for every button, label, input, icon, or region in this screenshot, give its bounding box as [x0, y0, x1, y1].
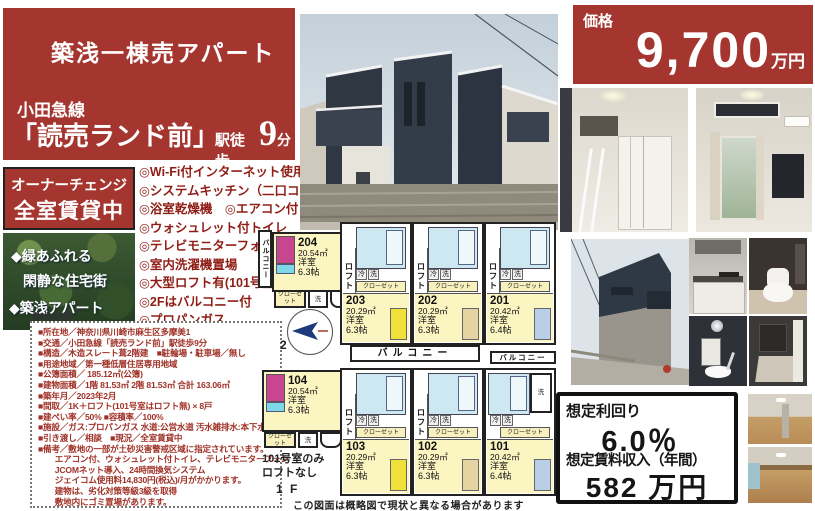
balcony-block [316, 110, 382, 146]
ceiling-light [740, 90, 764, 100]
closet-label: クローゼット [264, 432, 296, 448]
loft-beam [760, 465, 812, 470]
window [611, 287, 633, 295]
shower-hose [726, 352, 735, 370]
overview-line: 建物は、劣化対策等級3級を取得 [38, 486, 276, 497]
bath-unit [356, 227, 406, 269]
toilet-bowl [763, 282, 793, 302]
photo-toilet [749, 238, 807, 314]
yield-box: 想定利回り 6.0％ 想定賃料収入（年間） 582 万円 [556, 392, 738, 504]
overview-line: 敷地内にゴミ置場があります。 [38, 497, 276, 508]
washer-label: 洗 [368, 269, 379, 280]
door-panel [793, 320, 803, 382]
loft-pillar [782, 404, 789, 438]
room-203: 203 20.29㎡ 洋室 6.3帖 [343, 293, 409, 342]
washer-label: 洗 [368, 415, 379, 426]
ceiling-light [711, 320, 723, 332]
dark-doorway [560, 88, 572, 232]
bath-unit [428, 373, 478, 415]
balcony-label: バルコニー [490, 351, 556, 364]
appliance-labels: 冷 洗 [500, 269, 523, 280]
floorplan-1f: 104 20.54㎡ 洋室 6.3帖 クローゼット 洗 101号室のみ ロフトな… [262, 368, 560, 496]
photo-washbasin [689, 316, 747, 386]
balcony-label: バルコニー [258, 230, 272, 288]
green-panel-line2: 閑静な住宅街 [23, 272, 135, 291]
washer-label: 洗 [440, 415, 451, 426]
furniture [462, 459, 479, 491]
curtain [756, 134, 764, 220]
overview-line: ■間取／1K＋ロフト(101号室はロフト無) × 8戸 [38, 401, 276, 412]
overview-line: ■施設／ガス:プロパンガス 水道:公営水道 汚水雑排水:本下水 [38, 422, 276, 433]
loft-ladder [578, 148, 593, 232]
compass-arrow [288, 310, 331, 353]
furniture [534, 308, 551, 340]
fridge-label: 冷 [428, 269, 439, 280]
appliance-labels: 冷 洗 [490, 415, 513, 426]
photo-kitchen [689, 238, 747, 314]
bed-pillow [276, 264, 295, 274]
accent-wall [748, 463, 760, 489]
ceiling-light [600, 90, 626, 102]
overview-line: ■交通／小田急線「読売ランド前」駅徒歩9分 [38, 338, 276, 349]
headline-box: 築浅一棟売アパート 小田急線 「読売ランド前」 駅徒歩 9 分 [3, 8, 295, 160]
ceiling-light [776, 398, 786, 402]
owner-change-badge: オーナーチェンジ 全室賃貸中 [3, 167, 135, 230]
bed [266, 374, 285, 402]
fridge-label: 冷 [356, 269, 367, 280]
transom-window [714, 102, 780, 118]
room-102: 102 20.29㎡ 洋室 6.3帖 [415, 439, 481, 493]
closet-label: クローゼット [356, 281, 406, 292]
plan-disclaimer: この図面は概略図で現状と異なる場合があります [293, 497, 524, 511]
closet-label: クローゼット [500, 427, 550, 438]
stove [719, 272, 739, 277]
range-hood [695, 240, 741, 254]
balcony-block [507, 112, 549, 142]
curtain [710, 132, 720, 220]
closet-label: クローゼット [500, 281, 550, 292]
bed-pillow [266, 402, 285, 412]
room-201: 201 20.42㎡ 洋室 6.4帖 [487, 293, 553, 342]
unit-103: ロフト 冷 洗 クローゼット 103 20.29㎡ 洋室 6.3帖 [340, 368, 412, 496]
floor-label-1f: 1 F [276, 482, 299, 496]
fridge-label: 冷 [500, 269, 511, 280]
furniture [390, 308, 407, 340]
closet-doors [618, 136, 672, 230]
fridge-label: 冷 [356, 415, 367, 426]
badge-line1: オーナーチェンジ [5, 174, 133, 195]
bath-unit [500, 227, 550, 269]
washer-label: 洗 [530, 373, 552, 413]
bathtub [386, 230, 403, 265]
balcony [647, 291, 671, 309]
loft-opening [580, 116, 618, 136]
wall-panel [759, 324, 787, 352]
bathtub [530, 230, 547, 265]
bath-unit [428, 227, 478, 269]
overview-line: ジェイコム使用料14,830円(税込)/月がかかります。 [38, 475, 276, 486]
walk-minutes: 9 [259, 118, 277, 148]
price-value: 9,700 [636, 21, 771, 79]
unit-104: 104 20.54㎡ 洋室 6.3帖 [262, 370, 348, 432]
photo-building-side [571, 239, 689, 385]
door-edge [795, 244, 805, 284]
room-101: 101 20.42㎡ 洋室 6.4帖 [487, 439, 553, 493]
bed [276, 236, 295, 264]
flyer-page: 築浅一棟売アパート 小田急線 「読売ランド前」 駅徒歩 9 分 オーナーチェンジ… [0, 0, 815, 511]
closet-seam [643, 136, 644, 228]
closet-label: クローゼット [428, 281, 478, 292]
loft-note-line1: 101号室のみ [262, 452, 324, 466]
cabinet-doors [693, 282, 745, 314]
fridge-label: 冷 [428, 415, 439, 426]
price-unit: 万円 [771, 47, 805, 72]
closet-label: クローゼット [356, 427, 406, 438]
appliance-labels: 冷 洗 [428, 269, 451, 280]
washer-label: 洗 [440, 269, 451, 280]
closet-label: クローゼット [428, 427, 478, 438]
walk-minutes-unit: 分 [277, 130, 291, 150]
furniture [534, 459, 551, 491]
furniture [390, 459, 407, 491]
washer-label: 洗 [502, 415, 513, 426]
loft-ladder [590, 148, 605, 232]
tv-screen [772, 154, 804, 198]
photo-building-main [300, 14, 558, 230]
furniture [462, 308, 479, 340]
photo-shower-room [749, 316, 807, 386]
station-name: 「読売ランド前」 [11, 116, 215, 153]
glass-door-garden [720, 136, 758, 220]
badge-line2: 全室賃貸中 [5, 195, 133, 225]
bathtub [510, 376, 527, 411]
overview-line: JCOMネット導入、24時間換気システム [38, 465, 276, 476]
mirror [701, 338, 721, 366]
north-arrow-compass [287, 309, 333, 355]
overview-line: エアコン付、ウォシュレット付トイレ、テレビモニターフォン [38, 454, 276, 465]
unit-101: 洗 冷 洗 クローゼット 101 20.42㎡ 洋室 6.4帖 [484, 368, 556, 496]
air-conditioner [784, 116, 810, 127]
unit-203: ロフト 冷 洗 クローゼット 203 20.29㎡ 洋室 6.3帖 [340, 222, 412, 345]
overview-line: ■建物面積／1階 81.53㎡ 2階 81.53㎡ 合計 163.06㎡ [38, 380, 276, 391]
appliance-labels: 冷 洗 [428, 415, 451, 426]
overview-box: ■所在地／神奈川県川崎市麻生区多摩美1 ■交通／小田急線「読売ランド前」駅徒歩9… [30, 321, 282, 508]
ceiling-light [776, 453, 786, 457]
overview-line: ■構造／木造スレート葺2階建 ■駐輪場・駐車場／無し [38, 348, 276, 359]
closet-label: クローゼット [274, 290, 306, 308]
washer-label: 洗 [512, 269, 523, 280]
photo-loft-space-1 [748, 394, 812, 444]
overview-line: ■用途地域／第一種低層住居専用地域 [38, 359, 276, 370]
washer-label: 洗 [298, 432, 318, 448]
washer-label: 洗 [308, 290, 328, 308]
window [417, 82, 425, 126]
bath-unit [356, 373, 406, 415]
appliance-labels: 冷 洗 [356, 415, 379, 426]
room-202: 202 20.29㎡ 洋室 6.3帖 [415, 293, 481, 342]
price-box: 価格 9,700 万円 [573, 5, 813, 84]
loft-note: 101号室のみ ロフトなし [262, 452, 324, 480]
loft-note-line2: ロフトなし [262, 466, 324, 480]
overview-line: ■築年月／2023年2月 [38, 391, 276, 402]
building-side-illustration [571, 239, 689, 385]
room-103: 103 20.29㎡ 洋室 6.3帖 [343, 439, 409, 493]
price-row: 9,700 万円 [573, 21, 805, 79]
room-size: 6.3帖 [288, 406, 346, 416]
headline-title: 築浅一棟売アパート [51, 34, 276, 68]
photo-loft-space-2 [748, 447, 812, 503]
unit-202: ロフト 冷 洗 クローゼット 202 20.29㎡ 洋室 6.3帖 [412, 222, 484, 345]
closet-seam [630, 136, 631, 228]
balcony-label: バルコニー [350, 345, 480, 362]
photo-interior-living [696, 88, 812, 232]
unit-201: ロフト 冷 洗 クローゼット 201 20.42㎡ 洋室 6.4帖 [484, 222, 556, 345]
toilet-symbol [320, 432, 342, 448]
green-panel-line1: ◆緑あふれる [11, 247, 135, 266]
appliance-labels: 冷 洗 [356, 269, 379, 280]
income-value: 582 万円 [560, 466, 734, 506]
bath-unit [488, 373, 530, 415]
north-pointer [292, 322, 318, 340]
bicycle [663, 365, 671, 373]
bathtub [458, 230, 475, 265]
overview-line: ■所在地／神奈川県川崎市麻生区多摩美1 [38, 327, 276, 338]
photo-interior-loft-ladder [560, 88, 688, 232]
fridge-label: 冷 [490, 415, 501, 426]
building-illustration [300, 14, 558, 230]
unit-102: ロフト 冷 洗 クローゼット 102 20.29㎡ 洋室 6.3帖 [412, 368, 484, 496]
window [404, 82, 412, 126]
bathtub [458, 376, 475, 411]
overview-line: ■建ぺい率／50% ■容積率／100% [38, 412, 276, 423]
overview-line: ■公簿面積／ 185.12㎡(公簿) [38, 369, 276, 380]
bathtub [386, 376, 403, 411]
overview-line: ■引き渡し／相談 ■現況／全室賃貸中 [38, 433, 276, 444]
overview-line: ■備考／敷地の一部が土砂災害警戒区域に指定されています。 [38, 444, 276, 455]
